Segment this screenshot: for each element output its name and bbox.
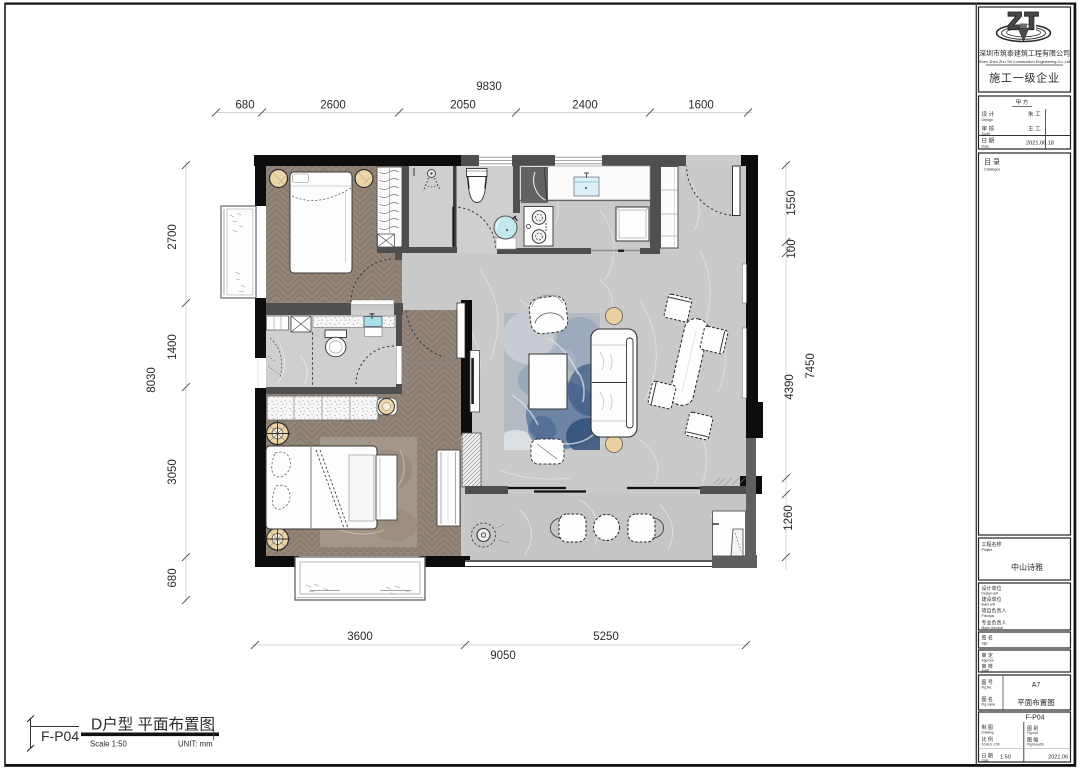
svg-text:Design unit: Design unit: [982, 592, 999, 596]
svg-text:9050: 9050: [490, 650, 516, 662]
svg-text:7450: 7450: [805, 353, 817, 379]
svg-text:5250: 5250: [593, 631, 619, 643]
svg-text:1260: 1260: [783, 505, 795, 531]
svg-text:2050: 2050: [450, 100, 476, 112]
svg-text:3600: 3600: [347, 631, 373, 643]
svg-text:Fig.sort: Fig.sort: [1027, 731, 1038, 735]
svg-text:Project: Project: [982, 548, 993, 552]
svg-text:680: 680: [167, 568, 179, 587]
svg-text:3050: 3050: [167, 459, 179, 485]
svg-text:D户型 平面布置图: D户型 平面布置图: [91, 716, 215, 734]
svg-text:SCALE 1:50: SCALE 1:50: [982, 743, 1000, 747]
svg-text:2021.06: 2021.06: [1048, 755, 1068, 761]
svg-text:Scale 1:50: Scale 1:50: [90, 740, 128, 749]
svg-text:F-P04: F-P04: [41, 728, 79, 744]
svg-text:680: 680: [235, 100, 254, 112]
svg-text:1550: 1550: [786, 190, 798, 216]
svg-text:A7: A7: [1032, 682, 1041, 689]
svg-text:Build unit: Build unit: [982, 603, 996, 607]
svg-text:Shen Zhen Zhu Tai Construction: Shen Zhen Zhu Tai Construction Engineeri…: [979, 59, 1070, 64]
svg-text:王 工: 王 工: [1028, 126, 1041, 133]
svg-text:甲 方: 甲 方: [1016, 98, 1029, 106]
svg-text:F-P04: F-P04: [1025, 715, 1044, 722]
svg-text:Catalogue: Catalogue: [984, 168, 1000, 172]
svg-text:4390: 4390: [784, 374, 796, 400]
svg-text:设 计: 设 计: [982, 110, 995, 118]
svg-text:平面布置图: 平面布置图: [1017, 697, 1055, 707]
svg-text:2600: 2600: [320, 100, 346, 112]
svg-text:Sign: Sign: [982, 642, 989, 646]
svg-text:9830: 9830: [476, 81, 502, 93]
svg-text:Fig.breadth: Fig.breadth: [1027, 743, 1044, 747]
svg-text:Design: Design: [982, 118, 993, 122]
svg-text:Audit: Audit: [982, 132, 990, 136]
svg-text:工程名称: 工程名称: [982, 541, 1002, 548]
svg-text:2021.06.18: 2021.06.18: [1026, 141, 1054, 147]
svg-text:2700: 2700: [167, 224, 179, 250]
svg-text:1600: 1600: [688, 100, 714, 112]
svg-text:Fig.name: Fig.name: [982, 703, 996, 707]
svg-text:Date: Date: [982, 759, 989, 763]
svg-text:2400: 2400: [572, 100, 598, 112]
svg-text:100: 100: [786, 239, 798, 258]
svg-text:Audit: Audit: [982, 669, 990, 673]
svg-text:Major principal: Major principal: [982, 626, 1004, 630]
svg-text:施工一级企业: 施工一级企业: [989, 71, 1060, 85]
svg-text:8030: 8030: [146, 367, 158, 393]
svg-text:UNIT: mm: UNIT: mm: [178, 740, 213, 749]
svg-text:Approve: Approve: [982, 659, 994, 663]
svg-text:1:50: 1:50: [1000, 755, 1011, 761]
svg-text:日 期: 日 期: [982, 138, 995, 145]
svg-text:朱 工: 朱 工: [1028, 110, 1041, 118]
svg-text:Drawing: Drawing: [982, 731, 994, 735]
svg-text:目 录: 目 录: [984, 158, 1000, 166]
svg-text:Fig.No.: Fig.No.: [982, 686, 993, 690]
svg-text:Principal: Principal: [982, 614, 995, 618]
svg-text:Date: Date: [982, 145, 990, 149]
svg-text:深圳市筑泰建筑工程有限公司: 深圳市筑泰建筑工程有限公司: [979, 49, 1070, 58]
svg-text:中山诗雅: 中山诗雅: [1011, 562, 1043, 572]
svg-text:1400: 1400: [167, 334, 179, 360]
svg-text:签 名: 签 名: [982, 635, 993, 642]
